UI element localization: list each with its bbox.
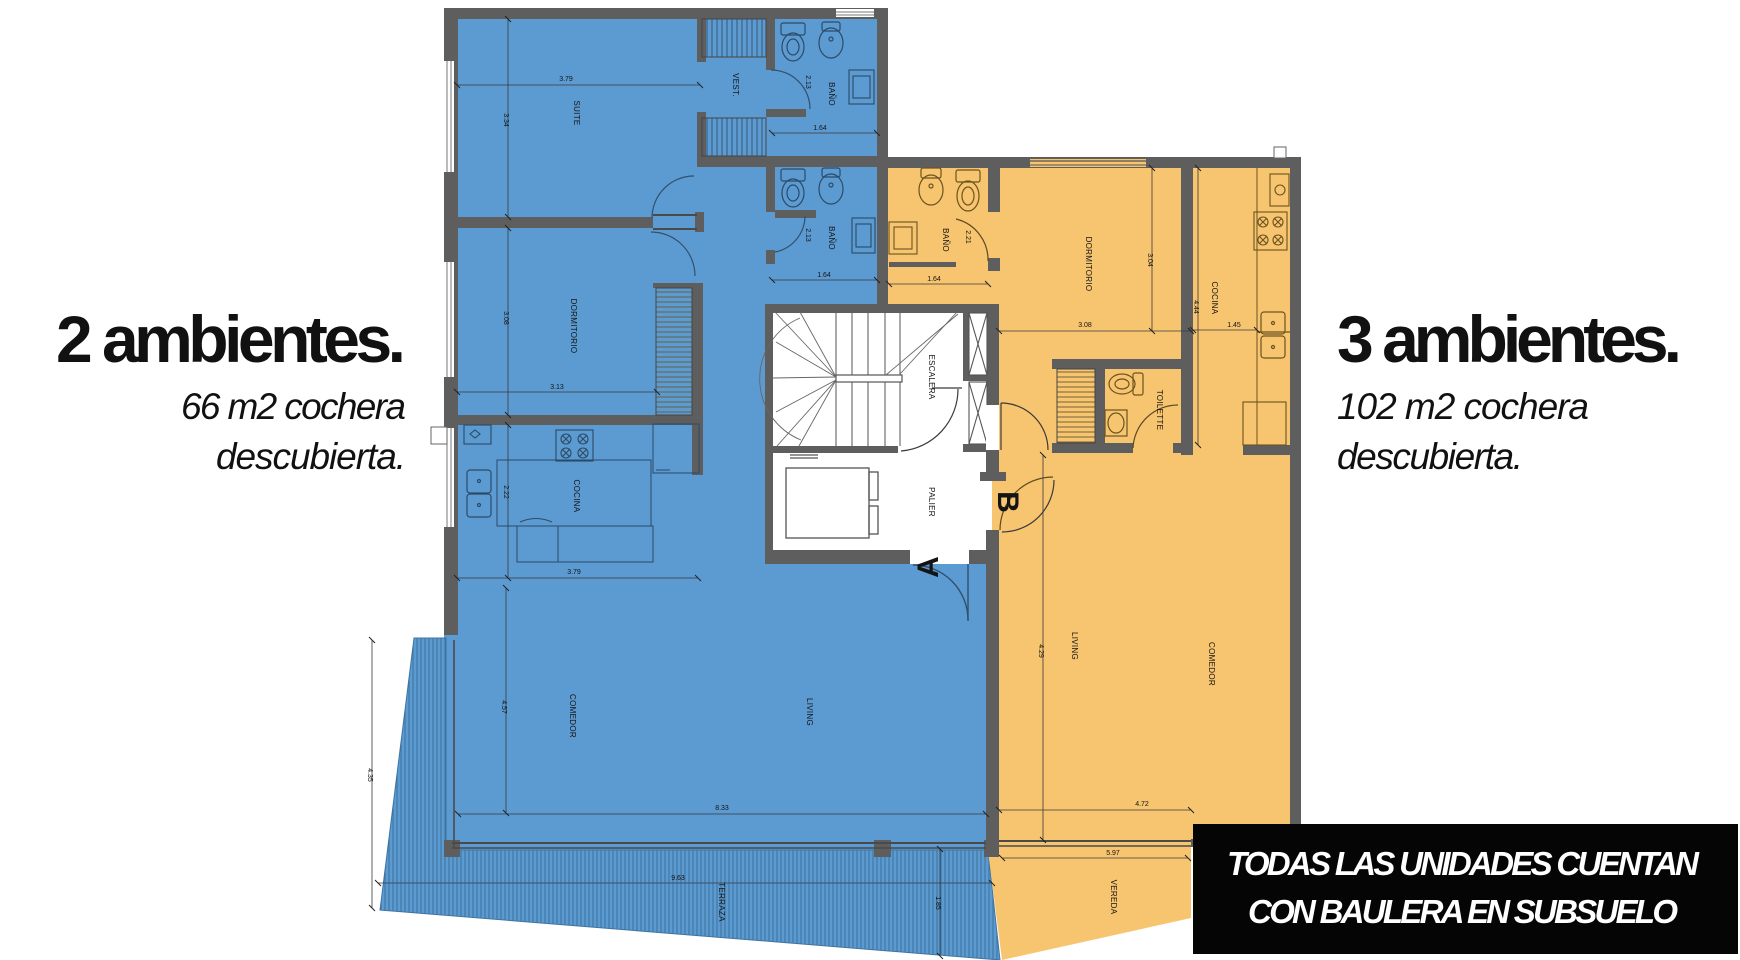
svg-text:1.64: 1.64 <box>813 125 827 132</box>
svg-text:102 m2 cochera: 102 m2 cochera <box>1337 386 1589 427</box>
svg-text:B: B <box>991 491 1024 513</box>
svg-text:3 ambientes.: 3 ambientes. <box>1337 302 1682 376</box>
svg-text:BAÑO: BAÑO <box>827 226 836 250</box>
svg-text:3.79: 3.79 <box>567 569 581 576</box>
svg-text:4.35: 4.35 <box>366 768 373 782</box>
svg-text:SUITE: SUITE <box>572 100 581 125</box>
svg-text:DORMITORIO: DORMITORIO <box>569 299 578 354</box>
svg-text:3.34: 3.34 <box>502 113 509 127</box>
svg-text:1.64: 1.64 <box>927 276 941 283</box>
svg-text:4.57: 4.57 <box>500 700 507 714</box>
svg-text:1.64: 1.64 <box>817 272 831 279</box>
svg-text:5.97: 5.97 <box>1106 850 1120 857</box>
svg-text:4.44: 4.44 <box>1192 300 1199 314</box>
svg-text:DORMITORIO: DORMITORIO <box>1084 237 1093 292</box>
svg-text:LIVING: LIVING <box>1070 632 1079 660</box>
svg-text:COCINA: COCINA <box>1210 282 1219 315</box>
svg-text:2.22: 2.22 <box>502 485 509 499</box>
svg-text:A: A <box>912 556 945 578</box>
svg-text:8.33: 8.33 <box>715 805 729 812</box>
svg-text:COMEDOR: COMEDOR <box>568 694 577 738</box>
svg-text:2.13: 2.13 <box>804 228 811 242</box>
svg-text:TERRAZA: TERRAZA <box>717 882 726 922</box>
svg-text:TODAS LAS UNIDADES CUENTAN: TODAS LAS UNIDADES CUENTAN <box>1227 845 1700 882</box>
svg-text:3.08: 3.08 <box>1078 322 1092 329</box>
svg-text:3.79: 3.79 <box>559 76 573 83</box>
svg-text:COMEDOR: COMEDOR <box>1207 642 1216 686</box>
svg-text:4.29: 4.29 <box>1037 644 1044 658</box>
svg-text:3.08: 3.08 <box>502 311 509 325</box>
svg-text:BAÑO: BAÑO <box>941 228 950 252</box>
svg-text:1.45: 1.45 <box>1227 322 1241 329</box>
svg-text:9.63: 9.63 <box>671 875 685 882</box>
svg-text:PALIER: PALIER <box>927 487 936 517</box>
svg-text:BAÑO: BAÑO <box>827 82 836 106</box>
svg-text:LIVING: LIVING <box>805 698 814 726</box>
svg-text:descubierta.: descubierta. <box>1337 436 1523 477</box>
svg-text:66 m2 cochera: 66 m2 cochera <box>181 386 406 427</box>
svg-text:2 ambientes.: 2 ambientes. <box>56 302 406 376</box>
svg-text:COCINA: COCINA <box>572 480 581 513</box>
svg-text:2.21: 2.21 <box>964 230 971 244</box>
svg-text:CON BAULERA EN SUBSUELO: CON BAULERA EN SUBSUELO <box>1248 893 1678 930</box>
svg-text:ESCALERA: ESCALERA <box>927 354 936 399</box>
svg-text:descubierta.: descubierta. <box>216 436 406 477</box>
svg-text:3.04: 3.04 <box>1146 253 1153 267</box>
svg-text:1.85: 1.85 <box>934 896 941 910</box>
svg-text:VEREDA: VEREDA <box>1109 880 1118 915</box>
svg-text:VEST.: VEST. <box>731 73 740 97</box>
svg-text:TOILETTE: TOILETTE <box>1155 390 1164 430</box>
svg-text:3.13: 3.13 <box>550 384 564 391</box>
svg-text:2.13: 2.13 <box>804 75 811 89</box>
svg-text:4.72: 4.72 <box>1135 801 1149 808</box>
